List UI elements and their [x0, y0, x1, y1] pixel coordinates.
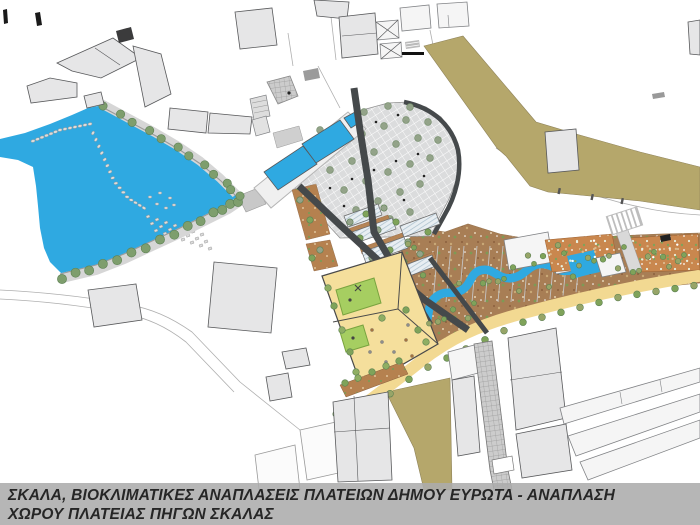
caption-line-1: ΣΚΑΛΑ, ΒΙΟΚΛΙΜΑΤΙΚΕΣ ΑΝΑΠΛΑΣΕΙΣ ΠΛΑΤΕΙΩΝ…: [8, 486, 700, 505]
site-plan-screenshot: ΣΚΑΛΑ, ΒΙΟΚΛΙΜΑΤΙΚΕΣ ΑΝΑΠΛΑΣΕΙΣ ΠΛΑΤΕΙΩΝ…: [0, 0, 700, 525]
caption-line-2: ΧΩΡΟΥ ΠΛΑΤΕΙΑΣ ΠΗΓΩΝ ΣΚΑΛΑΣ: [8, 505, 700, 524]
scale-bar: [402, 52, 424, 55]
site-plan-map: [0, 0, 700, 525]
project-caption: ΣΚΑΛΑ, ΒΙΟΚΛΙΜΑΤΙΚΕΣ ΑΝΑΠΛΑΣΕΙΣ ΠΛΑΤΕΙΩΝ…: [0, 483, 700, 525]
